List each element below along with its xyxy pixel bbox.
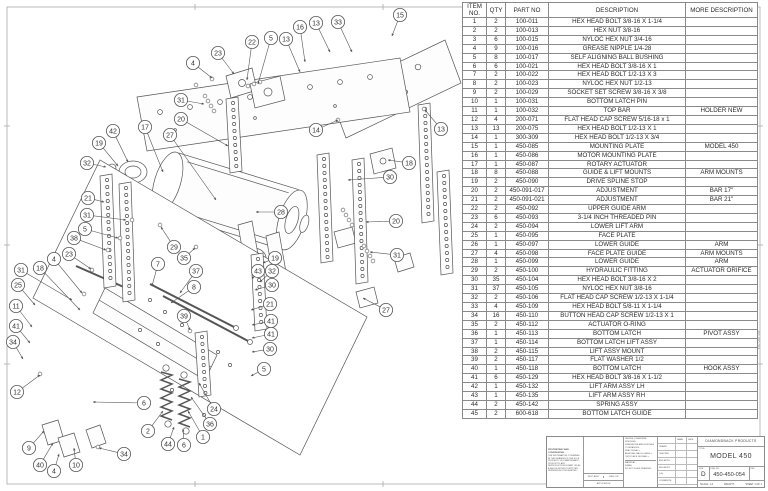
table-cell: NYLOC HEX NUT 3/4-16: [549, 35, 686, 44]
table-row: 101100-031BOTTOM LATCH PIN: [463, 98, 758, 107]
table-row: 1313200-075HEX HEAD BOLT 1/2-13 X 1: [463, 124, 758, 133]
table-cell: 40: [463, 365, 487, 374]
balloon-number: 21: [266, 301, 274, 308]
table-cell: 450-132: [506, 383, 549, 392]
balloon-leader: [289, 45, 300, 72]
table-cell: FLAT HEAD CAP SCREW 1/2-13 X 1-1/4: [549, 294, 686, 303]
balloon-number: 4: [52, 256, 56, 263]
balloon-number: 15: [396, 12, 404, 19]
table-cell: 37: [463, 338, 487, 347]
table-cell: 100-011: [506, 18, 549, 27]
table-cell: 450-091-017: [506, 187, 549, 196]
balloon-number: 32: [268, 268, 276, 275]
balloon-number: 20: [392, 218, 400, 225]
table-cell: [686, 320, 758, 329]
table-cell: UPPER GUIDE ARM: [549, 205, 686, 214]
table-cell: [686, 115, 758, 124]
table-cell: 2: [487, 347, 506, 356]
table-cell: LIFT ASSY MOUNT: [549, 347, 686, 356]
balloon-number: 5: [83, 226, 87, 233]
balloon-number: 4: [52, 468, 56, 475]
table-cell: 6: [463, 62, 487, 71]
table-row: 292450-100HYDRAULIC FITTINGACTUATOR ORIF…: [463, 267, 758, 276]
column-header: QTY: [487, 3, 506, 18]
table-cell: 450-129: [506, 374, 549, 383]
table-cell: NYLOC HEX NUT 1/2-13: [549, 80, 686, 89]
table-cell: 100-015: [506, 35, 549, 44]
table-row: 431450-135LIFT ARM ASSY RH: [463, 392, 758, 401]
sign-row-label: Q.A.: [658, 471, 676, 478]
table-cell: 20: [463, 187, 487, 196]
table-cell: [686, 18, 758, 27]
table-cell: 450-100: [506, 267, 549, 276]
balloon-number: 35: [180, 255, 188, 262]
table-cell: 8: [463, 80, 487, 89]
table-cell: 14: [463, 133, 487, 142]
balloon-number: 41: [267, 318, 275, 325]
balloon-number: 31: [83, 212, 91, 219]
table-cell: HEX NUT 3/8-16: [549, 26, 686, 35]
table-cell: [686, 294, 758, 303]
balloon-number: 24: [210, 406, 218, 413]
table-cell: 39: [463, 356, 487, 365]
table-cell: 1: [487, 365, 506, 374]
table-cell: HEX HEAD BOLT 3/8-16 X 1-1/2: [549, 374, 686, 383]
table-cell: 450-114: [506, 338, 549, 347]
do-not-scale-label: DO NOT SCALE DRAWING: [625, 468, 656, 471]
table-cell: 9: [463, 89, 487, 98]
table-cell: HEX HEAD BOLT 3/8-16 X 1-1/4: [549, 18, 686, 27]
table-row: 171450-087ROTARY ACTUATOR: [463, 160, 758, 169]
table-row: 92100-029SOCKET SET SCREW 3/8-16 X 3/8: [463, 89, 758, 98]
balloon-leader: [43, 443, 53, 459]
balloon-number: 8: [192, 284, 196, 291]
table-cell: 450-094: [506, 222, 549, 231]
rod-end: [234, 326, 239, 331]
table-cell: 600-618: [506, 409, 549, 418]
column-header: PART NO: [506, 3, 549, 18]
table-cell: 450-109: [506, 303, 549, 312]
table-row: 58100-017SELF ALIGNING BALL BUSHING: [463, 53, 758, 62]
table-cell: TOP BAR: [549, 107, 686, 116]
table-cell: 11: [463, 107, 487, 116]
sign-row-label: ENG APPR.: [658, 458, 676, 465]
size-value: D: [698, 471, 709, 479]
table-cell: 24: [463, 222, 487, 231]
balloon-number: 1: [201, 434, 205, 441]
table-cell: BAR 17": [686, 187, 758, 196]
tolerance-block: UNLESS OTHERWISE SPECIFIED: DIMENSIONS A…: [623, 437, 657, 487]
table-cell: 12: [463, 115, 487, 124]
table-cell: 1: [487, 240, 506, 249]
proprietary-note: PROPRIETARY AND CONFIDENTIAL THE INFORMA…: [547, 437, 583, 487]
table-row: 66100-021HEX HEAD BOLT 3/8-16 X 1: [463, 62, 758, 71]
table-cell: 23: [463, 213, 487, 222]
table-cell: BAR 21": [686, 196, 758, 205]
balloon-number: 31: [17, 267, 25, 274]
table-cell: 2: [487, 222, 506, 231]
balloon-number: 37: [192, 268, 200, 275]
table-cell: 4: [487, 115, 506, 124]
balloon-number: 11: [12, 303, 19, 310]
balloon-leader: [191, 397, 206, 419]
balloon-leader: [56, 454, 59, 465]
balloon-item-31: 31: [370, 248, 404, 261]
bom-header-row: ITEM NO.QTYPART NODESCRIPTIONMORE DESCRI…: [463, 3, 758, 18]
table-row: 222450-092UPPER GUIDE ARM: [463, 205, 758, 214]
balloon-number: 17: [141, 124, 149, 131]
table-cell: 15: [463, 142, 487, 151]
table-cell: 450-097: [506, 240, 549, 249]
table-cell: 1: [487, 160, 506, 169]
balloon-number: 23: [65, 251, 73, 258]
table-row: 392450-117FLAT WASHER 1/2: [463, 356, 758, 365]
table-cell: 35: [487, 276, 506, 285]
table-cell: BOTTOM LATCH: [549, 365, 686, 374]
table-cell: 450-117: [506, 356, 549, 365]
balloon-number: 32: [83, 160, 91, 167]
table-cell: 200-071: [506, 115, 549, 124]
table-cell: SOCKET SET SCREW 3/8-16 X 3/8: [549, 89, 686, 98]
table-row: 188450-088GUIDE & LIFT MOUNTSARM MOUNTS: [463, 169, 758, 178]
table-cell: 7: [463, 71, 487, 80]
table-cell: [686, 374, 758, 383]
table-cell: [686, 409, 758, 418]
balloon-item-6: 6: [93, 396, 151, 409]
balloon-number: 34: [9, 339, 17, 346]
table-cell: 450-086: [506, 151, 549, 160]
table-cell: 450-112: [506, 320, 549, 329]
balloon-number: 38: [70, 235, 78, 242]
table-cell: [686, 383, 758, 392]
table-row: 401450-118BOTTOM LATCHHOOK ASSY: [463, 365, 758, 374]
table-row: 242450-094LOWER LIFT ARM: [463, 222, 758, 231]
balloon-item-16: 16: [293, 20, 306, 62]
balloon-number: 29: [170, 244, 178, 251]
drawing-title: MODEL 450: [698, 453, 764, 461]
table-cell: 13: [463, 124, 487, 133]
table-cell: [686, 285, 758, 294]
adjustment-bar: [437, 170, 453, 275]
table-cell: 29: [463, 267, 487, 276]
balloon-item-5: 5: [258, 31, 278, 84]
next-assy-label: NEXT ASSY: [584, 476, 604, 479]
column-header: MORE DESCRIPTION: [686, 3, 758, 18]
table-cell: 100-029: [506, 89, 549, 98]
balloon-number: 25: [14, 282, 22, 289]
table-cell: 2: [487, 320, 506, 329]
balloon-leader: [366, 221, 389, 222]
table-cell: 25: [463, 231, 487, 240]
balloon-leader: [188, 411, 200, 431]
table-cell: 450-090: [506, 178, 549, 187]
table-cell: [686, 178, 758, 187]
table-cell: 1: [463, 18, 487, 27]
balloon-number: 20: [177, 116, 185, 123]
rod-end: [248, 340, 253, 345]
table-row: 334450-109HEX HEAD BOLT 5/8-11 X 1-1/4: [463, 303, 758, 312]
table-cell: MOTOR MOUNTING PLATE: [549, 151, 686, 160]
table-cell: [686, 80, 758, 89]
date-col-label: DATE: [687, 437, 697, 444]
sign-row-label: COMMENTS:: [658, 478, 676, 485]
table-cell: 30: [463, 276, 487, 285]
balloon-leader: [16, 348, 23, 359]
balloon-number: 36: [206, 421, 214, 428]
table-cell: [686, 151, 758, 160]
table-cell: ARM MOUNTS: [686, 169, 758, 178]
table-cell: [686, 338, 758, 347]
table-row: 36100-015NYLOC HEX NUT 3/4-16: [463, 35, 758, 44]
table-cell: 100-031: [506, 98, 549, 107]
table-cell: 4: [487, 249, 506, 258]
table-cell: 2: [487, 187, 506, 196]
table-cell: HEX HEAD BOLT 1/2-13 X 3/4: [549, 133, 686, 142]
table-cell: 100-032: [506, 107, 549, 116]
table-cell: 45: [463, 409, 487, 418]
table-cell: 1: [487, 107, 506, 116]
balloon-item-12: 12: [10, 375, 40, 399]
table-cell: HEX HEAD BOLT 1/2-13 X 1: [549, 124, 686, 133]
balloon-number: 14: [312, 127, 320, 134]
table-cell: HEX HEAD BOLT 1/2-13 X 3: [549, 71, 686, 80]
balloon-number: 19: [95, 140, 103, 147]
table-cell: [686, 213, 758, 222]
rev-label: REV: [751, 468, 755, 470]
table-row: 82100-023NYLOC HEX NUT 1/2-13: [463, 80, 758, 89]
table-cell: 41: [463, 374, 487, 383]
table-cell: 10: [463, 98, 487, 107]
table-cell: ARM: [686, 258, 758, 267]
table-cell: HYDRAULIC FITTING: [549, 267, 686, 276]
table-cell: [686, 311, 758, 320]
size-label: SIZE: [699, 468, 703, 470]
table-row: 352450-112ACTUATOR O-RING: [463, 320, 758, 329]
table-cell: 450-091-021: [506, 196, 549, 205]
table-cell: 1: [487, 231, 506, 240]
table-cell: 35: [463, 320, 487, 329]
table-cell: 2: [487, 409, 506, 418]
dwg-no-label: DWG. NO.: [711, 468, 720, 470]
table-cell: 100-023: [506, 80, 549, 89]
balloon-leader: [116, 137, 128, 162]
table-cell: 27: [463, 249, 487, 258]
table-row: 3416450-110BUTTON HEAD CAP SCREW 1/2-13 …: [463, 311, 758, 320]
table-cell: FACE PLATE: [549, 231, 686, 240]
table-cell: ROTARY ACTUATOR: [549, 160, 686, 169]
balloon-number: 40: [36, 462, 44, 469]
table-cell: 450-135: [506, 392, 549, 401]
table-cell: 6: [487, 62, 506, 71]
table-cell: 21: [463, 196, 487, 205]
table-cell: 450-105: [506, 285, 549, 294]
balloon-leader: [341, 28, 352, 52]
balloon-number: 6: [142, 400, 146, 407]
proprietary-heading: PROPRIETARY AND CONFIDENTIAL: [548, 449, 582, 454]
table-cell: 2: [487, 26, 506, 35]
balloon-leader: [22, 375, 40, 388]
table-cell: BOTTOM LATCH PIN: [549, 98, 686, 107]
balloon-item-42: 42: [106, 124, 128, 162]
balloon-leader: [93, 402, 137, 403]
balloon-leader: [222, 58, 234, 74]
balloon-number: 16: [296, 24, 304, 31]
table-cell: 16: [487, 311, 506, 320]
table-row: 12100-011HEX HEAD BOLT 3/8-16 X 1-1/4: [463, 18, 758, 27]
table-cell: 100-022: [506, 71, 549, 80]
table-cell: [686, 303, 758, 312]
balloon-leader: [170, 427, 174, 438]
table-cell: [686, 44, 758, 53]
balloon-number: 33: [334, 19, 342, 26]
table-cell: [686, 392, 758, 401]
table-cell: BOTTOM LATCH: [549, 329, 686, 338]
balloon-number: 39: [180, 313, 188, 320]
table-cell: 34: [463, 311, 487, 320]
table-cell: 2: [463, 26, 487, 35]
table-cell: 42: [463, 383, 487, 392]
table-cell: 6: [487, 374, 506, 383]
table-cell: 6: [487, 213, 506, 222]
table-cell: 450-104: [506, 276, 549, 285]
table-cell: LOWER GUIDE: [549, 258, 686, 267]
table-cell: 450-088: [506, 169, 549, 178]
balloon-number: 42: [109, 128, 117, 135]
balloon-number: 41: [12, 323, 20, 330]
balloon-item-44: 44: [161, 427, 174, 451]
balloon-number: 4: [191, 60, 195, 67]
balloon-leader: [99, 448, 118, 452]
title-block: PROPRIETARY AND CONFIDENTIAL THE INFORMA…: [546, 436, 765, 488]
balloon-number: 23: [214, 50, 222, 57]
balloon-number: 12: [13, 389, 21, 396]
balloon-number: 27: [166, 132, 174, 139]
balloon-leader: [319, 29, 330, 52]
table-cell: BUTTON HEAD CAP SCREW 1/2-13 X 1: [549, 311, 686, 320]
table-cell: GUIDE & LIFT MOUNTS: [549, 169, 686, 178]
table-cell: [686, 347, 758, 356]
balloon-number: 9: [27, 445, 31, 452]
balloon-item-20: 20: [366, 214, 403, 227]
table-cell: 19: [463, 178, 487, 187]
balloon-number: 5: [262, 366, 266, 373]
table-cell: 9: [487, 44, 506, 53]
application-block: NEXT ASSY USED ON APPLICATION: [583, 437, 623, 487]
table-cell: 3-1/4 INCH THREADED PIN: [549, 213, 686, 222]
table-cell: 43: [463, 392, 487, 401]
balloon-leader: [152, 411, 163, 426]
table-row: 251450-095FACE PLATE: [463, 231, 758, 240]
table-row: 212450-091-021ADJUSTMENTBAR 21": [463, 196, 758, 205]
table-cell: [686, 400, 758, 409]
table-cell: 450-092: [506, 205, 549, 214]
table-cell: 2: [487, 294, 506, 303]
title-label: TITLE:: [699, 448, 705, 450]
table-cell: 450-110: [506, 311, 549, 320]
table-cell: BOTTOM LATCH GUIDE: [549, 409, 686, 418]
table-cell: LIFT ARM ASSY LH: [549, 383, 686, 392]
table-cell: ARM MOUNTS: [686, 249, 758, 258]
table-cell: 2: [487, 400, 506, 409]
table-cell: 2: [487, 178, 506, 187]
table-cell: 18: [463, 169, 487, 178]
table-cell: 450-093: [506, 213, 549, 222]
table-cell: 1: [487, 383, 506, 392]
table-row: 111100-032TOP BARHOLDER NEW: [463, 107, 758, 116]
balloon-number: 22: [248, 39, 256, 46]
balloon-number: 18: [405, 160, 413, 167]
table-cell: 13: [487, 124, 506, 133]
sheet-number: SHEET 1 OF 1: [745, 483, 762, 486]
table-cell: 37: [487, 285, 506, 294]
table-cell: ACTUATOR O-RING: [549, 320, 686, 329]
table-row: 421450-132LIFT ARM ASSY LH: [463, 383, 758, 392]
table-cell: 33: [463, 303, 487, 312]
table-row: 22100-013HEX NUT 3/8-16: [463, 26, 758, 35]
balloon-number: 30: [386, 174, 394, 181]
table-cell: 300-309: [506, 133, 549, 142]
table-cell: [686, 205, 758, 214]
table-cell: 3: [463, 35, 487, 44]
balloon-number: 31: [393, 252, 401, 259]
table-cell: [686, 124, 758, 133]
table-cell: 4: [463, 44, 487, 53]
balloon-leader: [370, 252, 390, 254]
table-cell: [686, 26, 758, 35]
balloon-number: 31: [177, 97, 185, 104]
table-row: 161450-086MOTOR MOUNTING PLATE: [463, 151, 758, 160]
table-row: 3137450-105NYLOC HEX NUT 3/8-16: [463, 285, 758, 294]
table-cell: 31: [463, 285, 487, 294]
table-cell: 1: [487, 142, 506, 151]
table-cell: [686, 356, 758, 365]
balloon-item-13: 13: [279, 32, 300, 72]
table-cell: 1: [487, 338, 506, 347]
table-cell: 17: [463, 160, 487, 169]
table-cell: BOTTOM LATCH LIFT ASSY: [549, 338, 686, 347]
tolerance-header: UNLESS OTHERWISE SPECIFIED:: [625, 438, 656, 443]
table-cell: NYLOC HEX NUT 3/8-16: [549, 285, 686, 294]
table-row: 151450-085MOUNTING PLATEMODEL 450: [463, 142, 758, 151]
table-cell: LOWER LIFT ARM: [549, 222, 686, 231]
balloon-number: 30: [266, 346, 274, 353]
table-cell: 2: [487, 267, 506, 276]
balloon-number: 2: [146, 428, 150, 435]
balloon-item-13: 13: [309, 16, 330, 52]
balloon-number: 19: [271, 255, 279, 262]
table-cell: 2: [487, 80, 506, 89]
table-cell: LOWER GUIDE: [549, 240, 686, 249]
table-cell: 2: [487, 18, 506, 27]
table-cell: 1: [487, 258, 506, 267]
table-cell: 28: [463, 258, 487, 267]
table-cell: 450-085: [506, 142, 549, 151]
table-cell: [686, 133, 758, 142]
table-cell: 2: [487, 196, 506, 205]
table-cell: [686, 53, 758, 62]
balloon-number: 28: [277, 209, 285, 216]
table-cell: [686, 98, 758, 107]
used-on-label: USED ON: [604, 476, 623, 479]
table-cell: 450-113: [506, 329, 549, 338]
table-cell: [686, 35, 758, 44]
balloon-item-19: 19: [92, 136, 118, 166]
table-cell: 1: [487, 392, 506, 401]
balloon-item-9: 9: [22, 431, 44, 455]
table-cell: LIFT ARM ASSY RH: [549, 392, 686, 401]
balloon-number: 13: [282, 36, 290, 43]
table-cell: [686, 160, 758, 169]
